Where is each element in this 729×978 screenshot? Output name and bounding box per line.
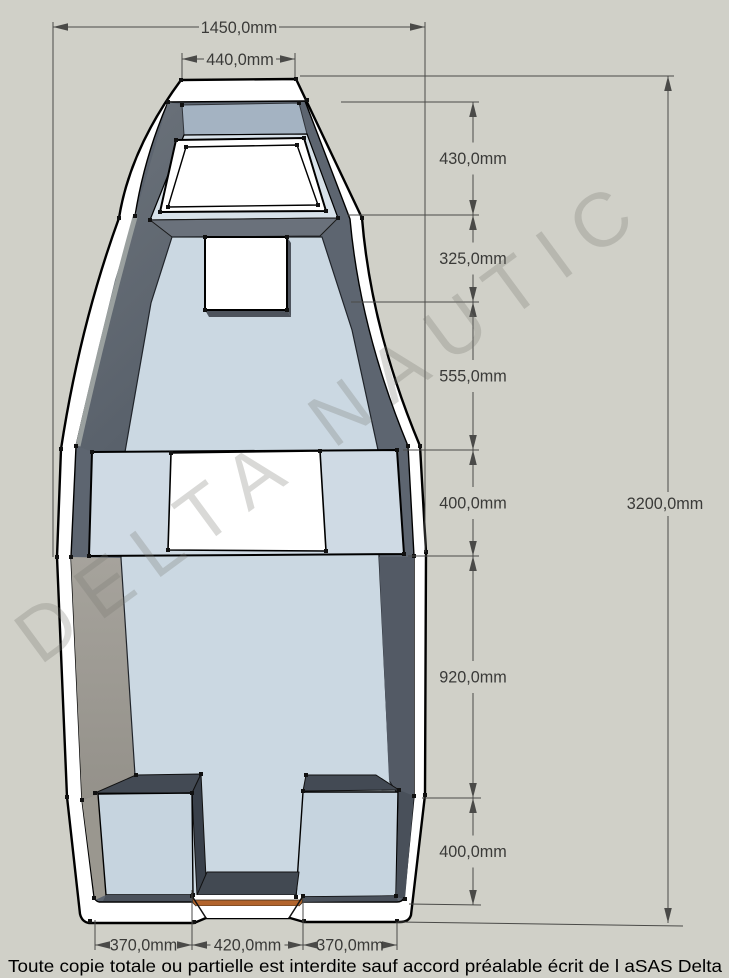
svg-text:Toute copie totale ou partiell: Toute copie totale ou partielle est inte… [8,956,722,976]
svg-text:440,0mm: 440,0mm [206,51,273,69]
svg-text:1450,0mm: 1450,0mm [201,19,277,37]
svg-text:3200,0mm: 3200,0mm [627,495,703,513]
svg-text:400,0mm: 400,0mm [439,843,506,861]
svg-text:400,0mm: 400,0mm [439,495,506,513]
svg-text:370,0mm: 370,0mm [316,937,383,955]
svg-text:430,0mm: 430,0mm [439,150,506,168]
svg-text:420,0mm: 420,0mm [214,937,281,955]
svg-text:370,0mm: 370,0mm [110,937,177,955]
svg-text:920,0mm: 920,0mm [439,669,506,687]
